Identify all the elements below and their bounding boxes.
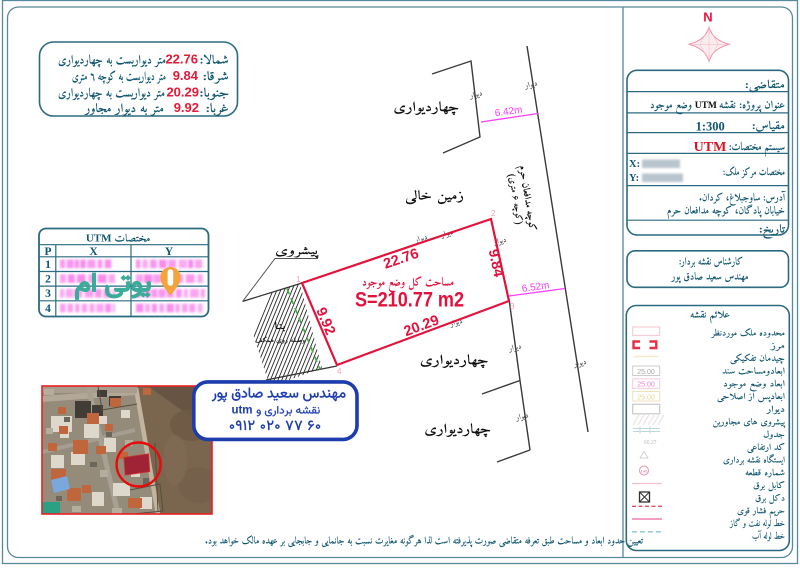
svg-text:1:300: 1:300: [696, 120, 725, 134]
svg-text:Y: Y: [165, 246, 174, 258]
svg-text:2: 2: [491, 209, 496, 218]
svg-text:4: 4: [337, 367, 342, 376]
svg-text:P: P: [44, 246, 51, 258]
svg-text:9.92: 9.92: [174, 100, 199, 115]
svg-text:25.00: 25.00: [637, 394, 655, 401]
svg-text:1: 1: [45, 259, 51, 271]
svg-text:3: 3: [45, 288, 51, 300]
svg-text:20.29: 20.29: [166, 85, 199, 100]
svg-text:UTM: UTM: [86, 233, 112, 245]
svg-text:N: N: [703, 10, 712, 25]
svg-text:25.00: 25.00: [637, 369, 655, 376]
svg-text:25.00: 25.00: [637, 382, 655, 389]
svg-text:1: 1: [296, 275, 301, 284]
svg-text:X:: X:: [629, 159, 640, 170]
svg-text:3: 3: [510, 302, 515, 311]
svg-text:2: 2: [45, 274, 51, 286]
svg-text:60.27: 60.27: [644, 440, 657, 446]
svg-text:UTM: UTM: [694, 140, 727, 155]
svg-text:22.76: 22.76: [165, 52, 198, 67]
svg-text:S=210.77 m2: S=210.77 m2: [355, 289, 464, 312]
svg-text:UTM: UTM: [695, 101, 717, 111]
svg-text:Y:: Y:: [629, 173, 639, 184]
svg-text:X: X: [89, 246, 98, 258]
svg-text:9.84: 9.84: [173, 68, 199, 83]
svg-text:4: 4: [45, 303, 51, 315]
svg-text:utm: utm: [231, 405, 252, 417]
svg-text:140: 140: [641, 469, 648, 474]
